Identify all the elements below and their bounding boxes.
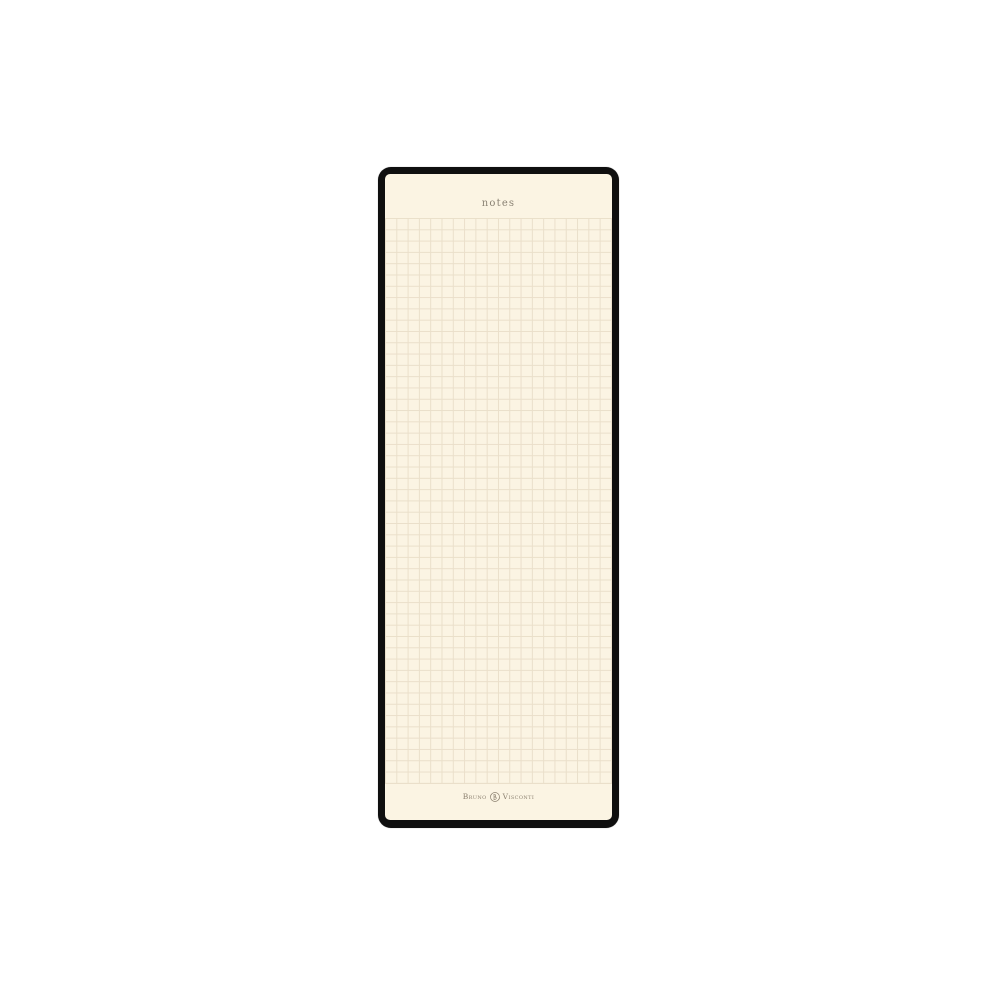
brand-name-first: Bruno [463, 793, 487, 801]
paper-header: notes [385, 174, 612, 218]
brand-name-second: Visconti [503, 793, 535, 801]
graph-grid [385, 218, 612, 784]
notes-title: notes [482, 199, 516, 209]
bv-monogram-icon [489, 791, 501, 803]
notepad-frame: notes Bruno Visconti [378, 167, 619, 828]
notepad-paper: notes Bruno Visconti [385, 174, 612, 820]
paper-footer: Bruno Visconti [385, 784, 612, 820]
brand-logo: Bruno Visconti [463, 791, 535, 803]
page-background: notes Bruno Visconti [0, 0, 1000, 1000]
